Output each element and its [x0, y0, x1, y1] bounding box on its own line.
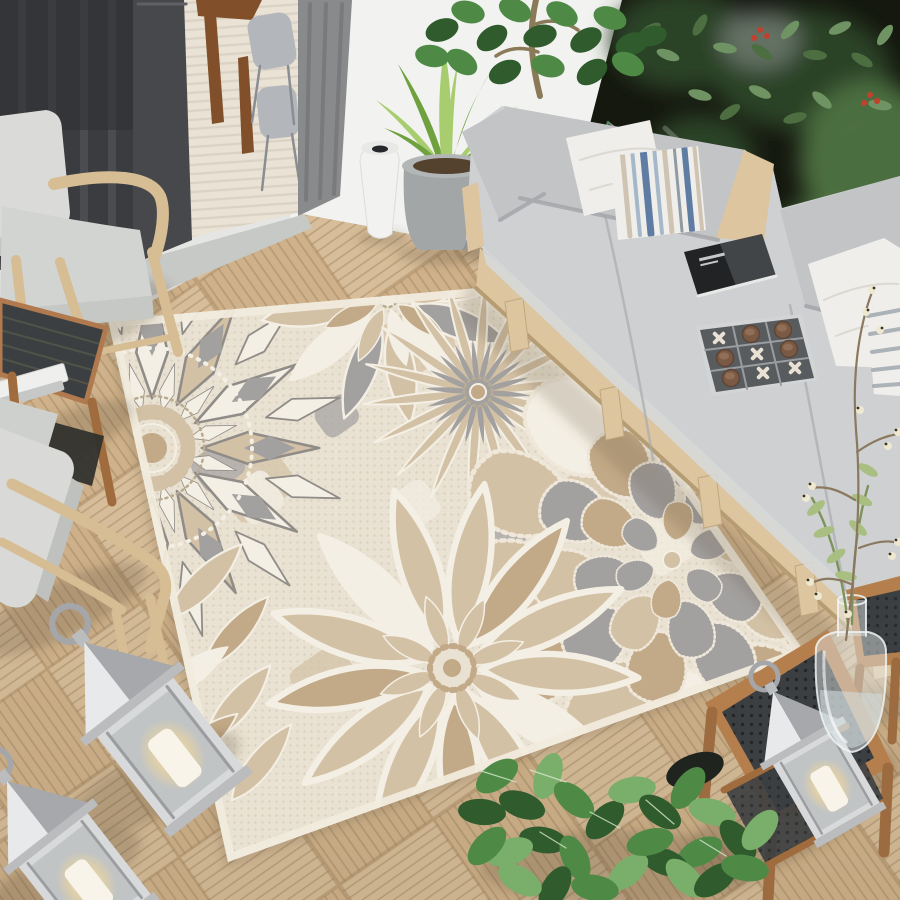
striped-pillow [610, 143, 706, 240]
patio-scene [0, 0, 900, 900]
patio-photo [0, 0, 900, 900]
speaker-top-ring [372, 146, 388, 153]
